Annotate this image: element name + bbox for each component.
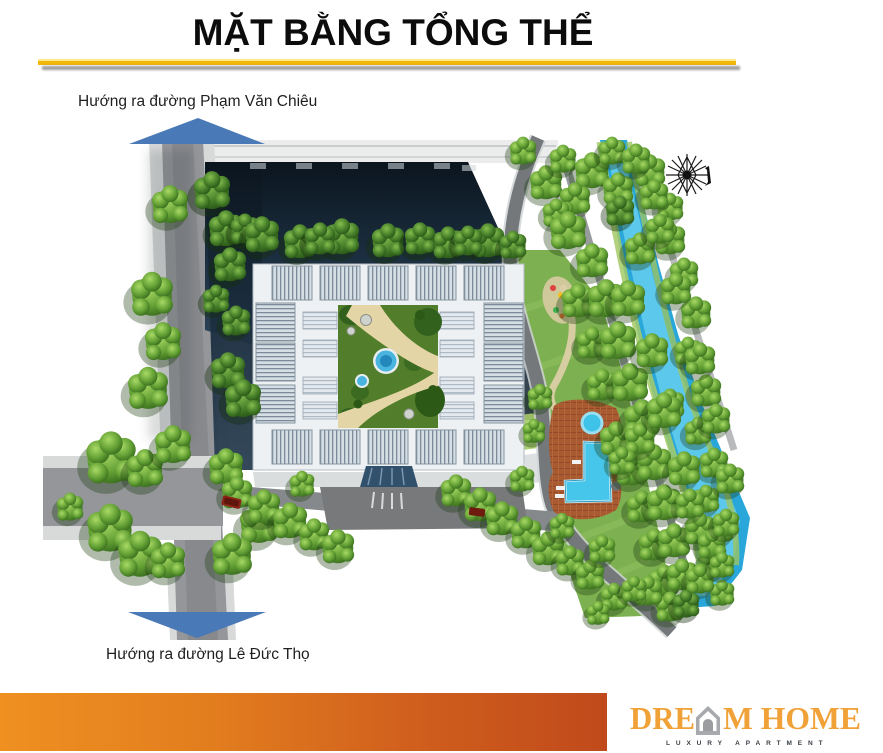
svg-text:DRE: DRE — [630, 700, 695, 736]
svg-text:LUXURY APARTMENT: LUXURY APARTMENT — [666, 740, 827, 747]
svg-text:M HOME: M HOME — [723, 700, 861, 736]
